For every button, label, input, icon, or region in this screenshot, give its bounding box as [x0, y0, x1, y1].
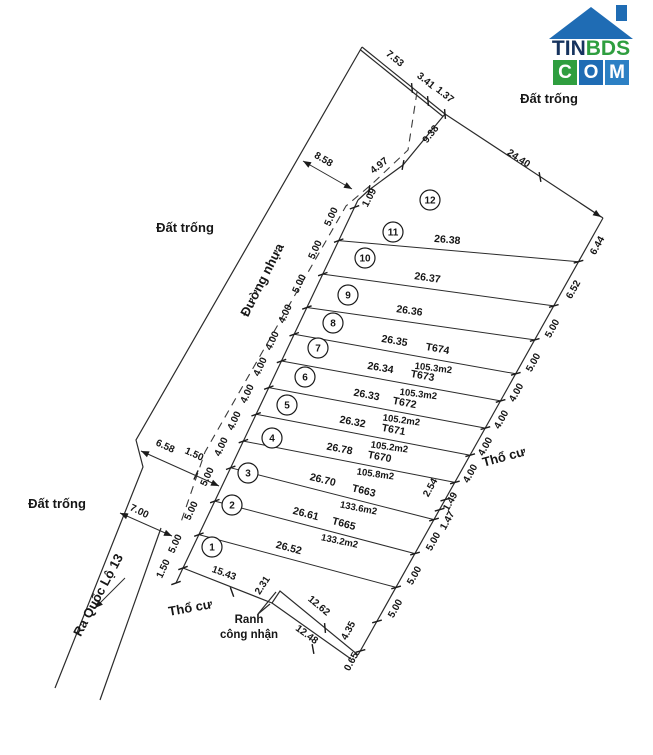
dimension-label: 4.00 [252, 355, 270, 378]
plot-number: 10 [359, 254, 371, 265]
dimension-label: 6.44 [588, 234, 607, 257]
dimension-label: 12.48 [293, 623, 320, 647]
label-dat-trong-west: Đất trống [156, 220, 214, 235]
plot-division-line [215, 501, 415, 553]
label-ra-quoc-lo-13: Ra Quốc Lộ 13 [70, 551, 126, 638]
plot-number: 11 [388, 228, 399, 239]
survey-plan-page: 26.3826.3726.3626.35T674105.3m226.34T673… [0, 0, 653, 755]
segment-length-label: 26.70 [309, 471, 338, 489]
plot-number: 4 [269, 434, 275, 445]
dimension-tick [428, 96, 429, 106]
logo-house-icon [541, 5, 641, 41]
logo-tile-c: C [553, 60, 577, 85]
logo-tile-o: O [579, 60, 603, 85]
parcel-code-label: T663 [351, 482, 377, 499]
dimension-label: 5.00 [183, 499, 201, 522]
dimension-label: 4.00 [277, 302, 295, 325]
segment-length-label: 26.61 [292, 505, 321, 523]
dimension-label: 4.00 [213, 435, 231, 458]
dimension-label: 5.00 [291, 272, 309, 295]
plot-number: 7 [315, 344, 321, 355]
dimension-label: 4.00 [264, 329, 282, 352]
road-east-lower-boundary [100, 528, 161, 700]
dimension-label: 5.00 [323, 205, 341, 228]
arrowhead [303, 161, 312, 168]
logo-roof-icon [549, 7, 633, 39]
dimension-label: 9.38 [421, 123, 442, 145]
dimension-tick [539, 172, 541, 182]
segment-length-label: 26.78 [326, 441, 354, 458]
plot-number: 8 [330, 319, 336, 330]
parcel-code-label: T665 [331, 515, 357, 533]
dimension-label: 24.40 [505, 147, 532, 170]
dimension-label: 1.37 [434, 85, 456, 106]
dimension-label: 1.49 [441, 490, 460, 513]
segment-length-label: 26.36 [396, 303, 424, 319]
dimension-label: 4.97 [368, 155, 390, 176]
dimension-label: 2.31 [253, 574, 273, 597]
tinbds-logo: TINBDS C O M [541, 5, 641, 85]
plot-number: 12 [424, 196, 436, 207]
label-ranh-cong-nhan-line2: công nhận [220, 629, 278, 641]
segment-length-label: 26.35 [381, 333, 409, 349]
logo-wordmark: TINBDS [541, 39, 641, 59]
dimension-tick [402, 160, 404, 170]
plot-number: 1 [209, 543, 215, 554]
dimension-label: 5.00 [307, 238, 325, 261]
segment-length-label: 26.52 [275, 539, 304, 557]
dimension-label: 4.00 [226, 409, 244, 432]
plot-number: 9 [345, 291, 351, 302]
parcel-area-label: 105.8m2 [356, 466, 395, 482]
plot-number: 6 [302, 373, 308, 384]
arrowhead [593, 210, 601, 217]
arrowhead [141, 451, 150, 457]
parcel-area-label: 133.6m2 [339, 500, 378, 518]
dimension-tick [445, 109, 446, 119]
dimension-label: 1.50 [155, 557, 173, 580]
segment-length-label: 26.34 [367, 360, 395, 376]
dimension-tick [412, 83, 413, 93]
dimension-label: 5.00 [405, 564, 424, 587]
dimension-label: 5.00 [543, 317, 562, 340]
plot-number: 5 [284, 401, 290, 412]
land-subdivision-diagram: 26.3826.3726.3626.35T674105.3m226.34T673… [0, 0, 653, 755]
dimension-label: 1.09 [360, 186, 379, 209]
dimension-label: 5.00 [424, 530, 443, 553]
segment-length-label: 26.37 [414, 270, 442, 286]
plot-number: 2 [229, 501, 235, 512]
dimension-label: 4.35 [339, 619, 358, 642]
dimension-tick [230, 587, 233, 596]
dimension-label: 1.47 [438, 509, 457, 532]
label-ranh-cong-nhan-line1: Ranh [235, 614, 264, 626]
dimension-label: 2.54 [421, 476, 440, 499]
segment-length-label: 26.32 [339, 414, 367, 431]
logo-tile-m: M [605, 60, 629, 85]
dimension-label: 5.00 [524, 351, 543, 374]
dimension-label: 4.00 [239, 382, 257, 405]
parcel-code-label: T674 [425, 341, 451, 357]
parcel-area-label: 133.2m2 [320, 532, 359, 551]
dimension-label: 3.41 [415, 71, 437, 92]
dimension-label: 4.00 [492, 408, 511, 431]
dimension-label: 8.58 [312, 150, 335, 169]
plot-number: 3 [245, 469, 251, 480]
dimension-label: 6.58 [154, 438, 177, 456]
arrowhead [163, 530, 172, 536]
segment-length-label: 26.33 [353, 387, 381, 404]
logo-com-tiles: C O M [541, 60, 641, 85]
label-tho-cu-south: Thổ cư [167, 596, 214, 619]
label-dat-trong-northeast: Đất trống [520, 91, 578, 106]
ranh-leader-2 [258, 604, 270, 614]
segment-length-label: 26.38 [434, 233, 461, 247]
dimension-tick [325, 623, 326, 633]
arrowhead [343, 182, 352, 189]
arrowhead [120, 513, 129, 519]
dimension-label: 5.00 [386, 597, 405, 620]
label-dat-trong-southwest: Đất trống [28, 496, 86, 511]
